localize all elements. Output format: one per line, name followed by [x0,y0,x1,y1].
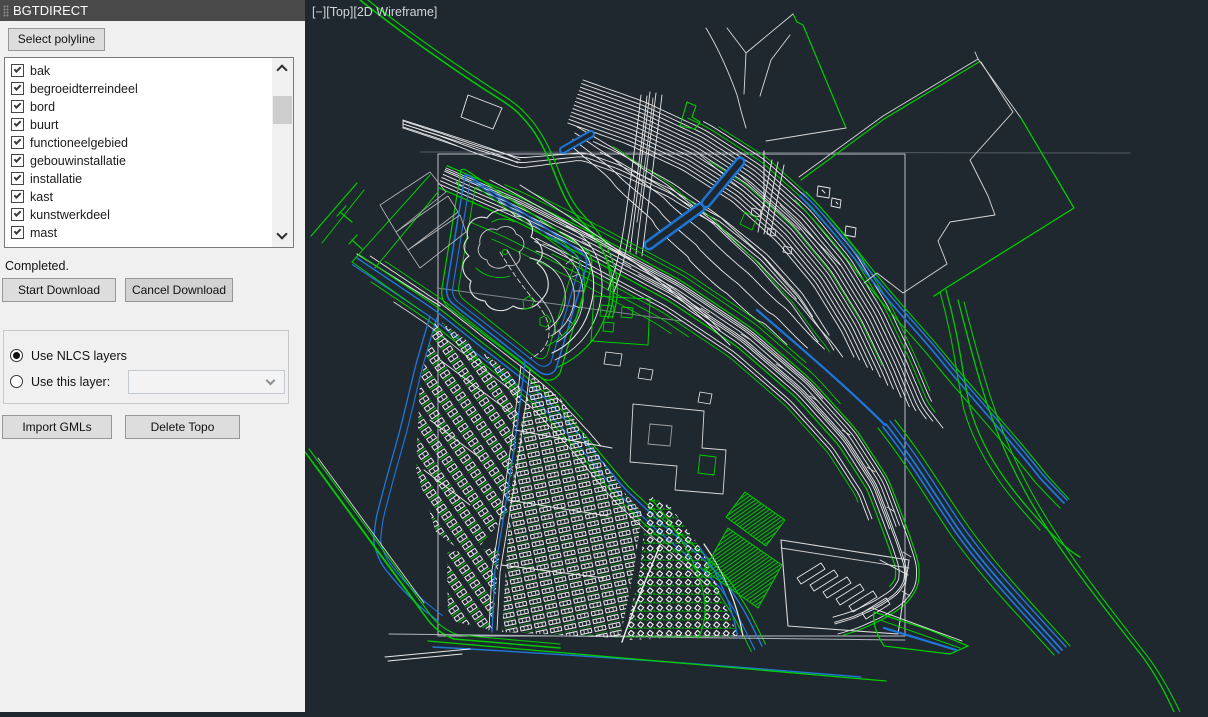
svg-text:[−][Top][2D Wireframe]: [−][Top][2D Wireframe] [312,5,437,19]
